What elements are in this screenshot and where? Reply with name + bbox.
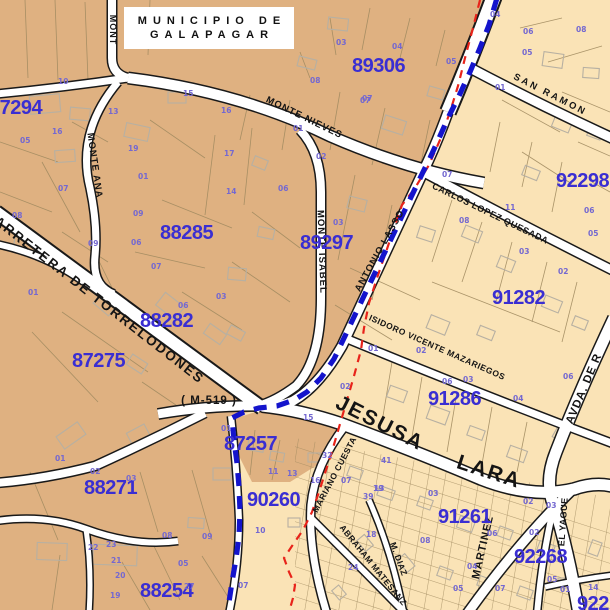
cadastral-map-canvas[interactable]: MONTMONTE NIEVESMONTE ANAMONTE ISABELCAR…: [0, 0, 610, 610]
municipality-label-line2: GALAPAGAR: [144, 29, 274, 41]
municipality-label-line1: MUNICIPIO DE: [132, 15, 286, 27]
street-label--m-519-: ( M-519 ): [181, 395, 237, 407]
municipality-label-box: MUNICIPIO DE GALAPAGAR: [124, 7, 294, 49]
map-base-layer: MONTMONTE NIEVESMONTE ANAMONTE ISABELCAR…: [0, 0, 610, 610]
street-label-mont: MONT: [108, 15, 118, 46]
